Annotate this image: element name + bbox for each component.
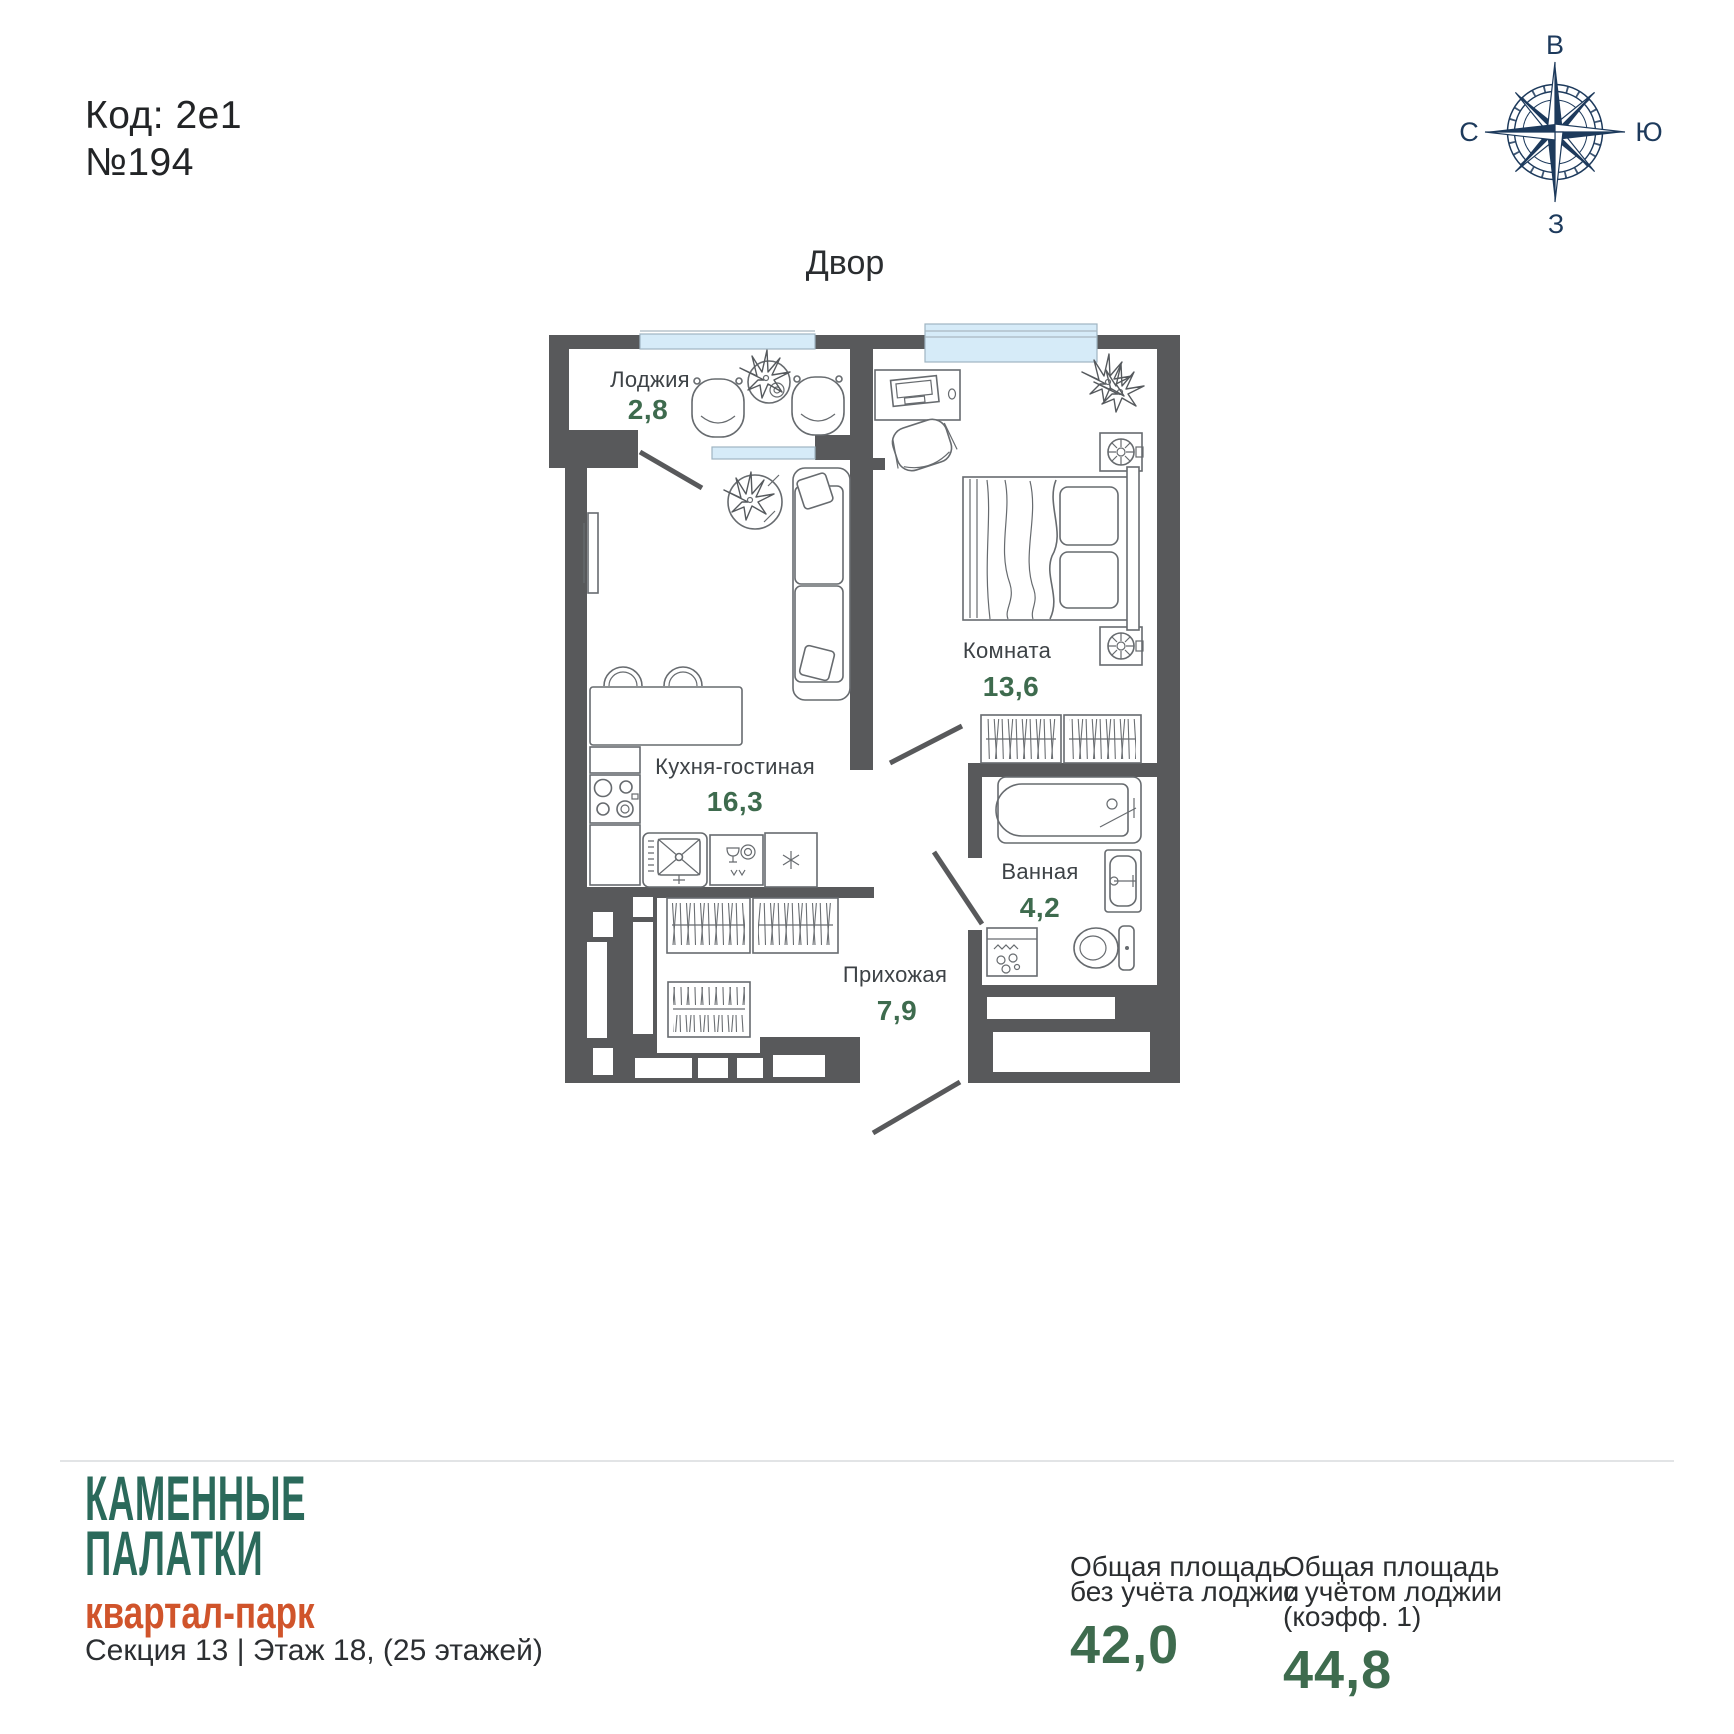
vent-unit: [1100, 627, 1143, 665]
loggia-window: [640, 334, 815, 349]
entrance-door: [873, 1082, 960, 1133]
stat-value: 44,8: [1283, 1639, 1613, 1701]
brand-logo: КАМЕННЫЕ ПАЛАТКИ квартал-парк: [85, 1472, 466, 1636]
compass-label-left: С: [1459, 117, 1479, 147]
compass-rose: В Ю З С: [1443, 28, 1678, 248]
bathroom-door: [934, 852, 982, 924]
brand-subtitle: квартал-парк: [85, 1590, 382, 1636]
compass-label-top: В: [1546, 30, 1564, 60]
loggia-chair: [692, 378, 744, 437]
brand-line2: ПАЛАТКИ: [85, 1527, 306, 1582]
yard-label: Двор: [500, 244, 1190, 283]
section-info: Секция 13 | Этаж 18, (25 этажей): [85, 1634, 543, 1668]
room-area-hallway: 7,9: [877, 995, 917, 1026]
wardrobe: [668, 982, 750, 1037]
sofa: [793, 468, 850, 700]
bed: [963, 467, 1139, 630]
bathroom-sink: [1105, 850, 1141, 912]
kitchen-cabinet: [590, 825, 640, 885]
room-label-loggia: Лоджия: [610, 367, 690, 392]
stove: [590, 775, 640, 823]
apartment-code: Код: 2е1: [85, 92, 242, 139]
bedroom-wardrobe: [981, 715, 1141, 763]
room-area-loggia: 2,8: [628, 394, 668, 425]
kitchen-sink: [643, 833, 707, 887]
sofa-pillow: [799, 645, 835, 681]
kitchen-furniture: [584, 468, 850, 887]
kitchen-island: [590, 667, 742, 745]
room-label-kitchen: Кухня-гостиная: [655, 754, 815, 779]
vent-unit: [1100, 433, 1143, 471]
room-label-hallway: Прихожая: [843, 962, 947, 987]
headboard: [1127, 467, 1139, 630]
dishwasher: [710, 835, 763, 885]
bathtub: [996, 777, 1141, 843]
wardrobe: [753, 898, 838, 953]
apartment-number: №194: [85, 139, 242, 186]
wall-mirror: [588, 513, 598, 593]
bedroom-door: [890, 726, 962, 763]
pillow: [1060, 487, 1118, 545]
room-area-kitchen: 16,3: [707, 786, 764, 817]
fridge: [765, 833, 817, 887]
room-area-bathroom: 4,2: [1020, 892, 1060, 923]
stat-label-line2: с учётом лоджии (коэфф. 1): [1283, 1579, 1613, 1629]
wardrobe: [667, 898, 750, 953]
office-chair: [887, 414, 960, 475]
footer-divider: [60, 1460, 1674, 1462]
room-label-bathroom: Ванная: [1001, 859, 1078, 884]
pillow: [1060, 552, 1118, 608]
loggia-door: [640, 452, 702, 488]
hallway-wardrobes: [667, 898, 838, 1037]
loggia-inner-window: [712, 447, 815, 459]
loggia-chair: [792, 376, 844, 435]
compass-graphic: [1485, 62, 1625, 202]
floor-plan: Лоджия 2,8 Кухня-гостиная 16,3 Комната 1…: [500, 290, 1190, 1150]
desk: [875, 370, 960, 420]
compass-label-right: Ю: [1635, 117, 1662, 147]
room-label-bedroom: Комната: [963, 638, 1052, 663]
compass-label-bottom: З: [1548, 209, 1564, 239]
toilet: [1074, 926, 1134, 970]
kitchen-cabinet: [590, 747, 640, 773]
apartment-code-block: Код: 2е1 №194: [85, 92, 242, 186]
bedroom-window: [925, 324, 1097, 362]
decor-table: [724, 472, 782, 529]
washing-machine: [987, 928, 1037, 976]
stat-total-area-with-loggia: Общая площадь с учётом лоджии (коэфф. 1)…: [1283, 1554, 1613, 1701]
loggia-furniture: [692, 350, 844, 437]
room-area-bedroom: 13,6: [983, 671, 1040, 702]
